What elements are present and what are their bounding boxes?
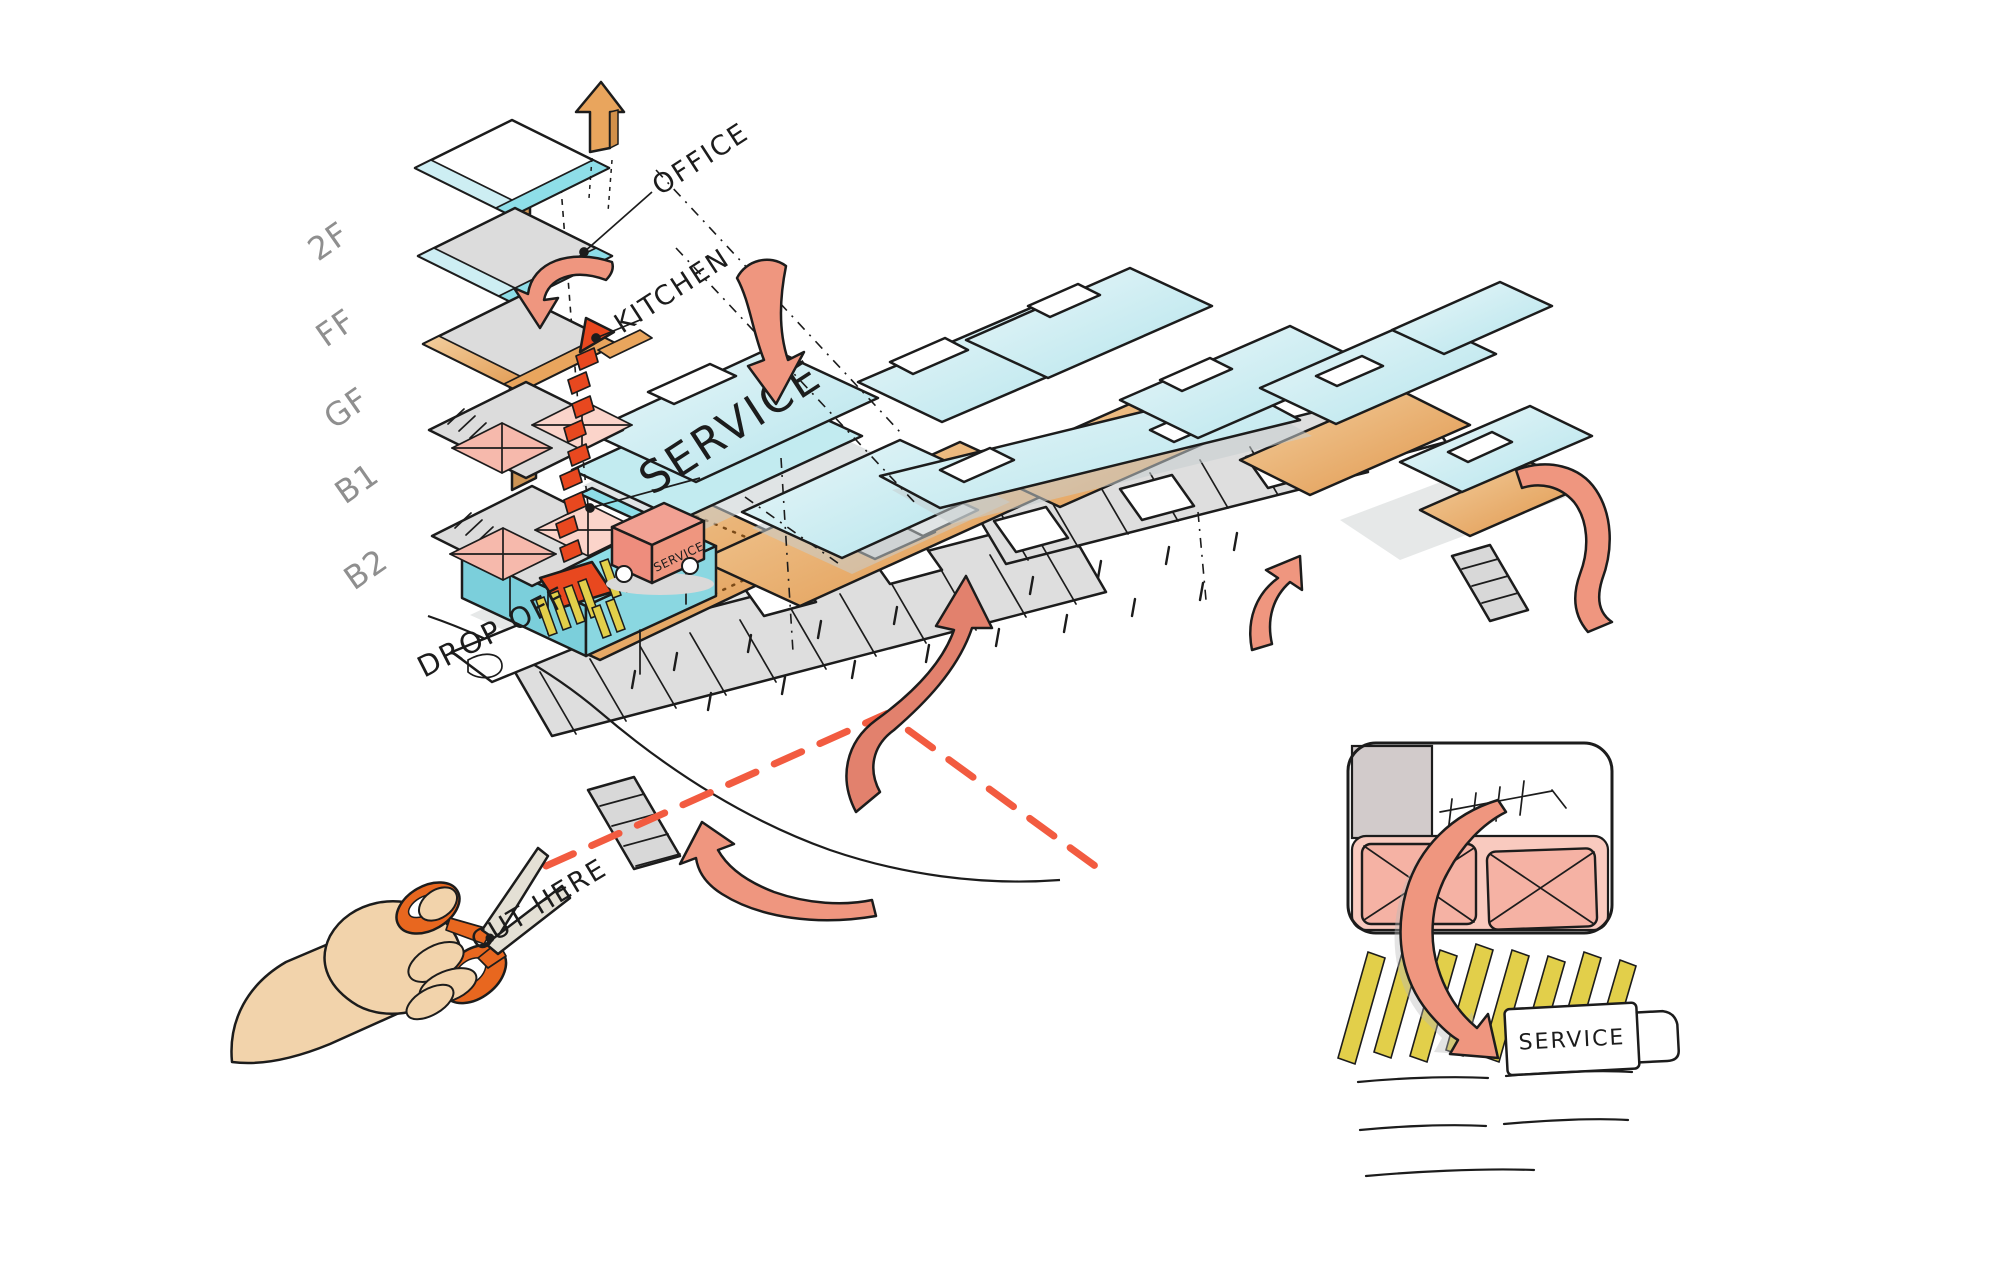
floor-label-ff: FF: [309, 301, 363, 354]
hand-with-scissors: CUT HERE: [231, 848, 612, 1063]
inset-gray-zone: [1352, 746, 1432, 838]
floor-label-b2: B2: [337, 541, 395, 598]
office-label: OFFICE: [647, 117, 755, 202]
walkway-ladder-left: [588, 777, 680, 869]
walkway-ladder-right: [1452, 545, 1528, 621]
floor-label-b1: B1: [328, 455, 386, 512]
service-detail-inset: SERVICE: [1338, 743, 1680, 1176]
inset-service-truck: SERVICE: [1504, 1000, 1679, 1075]
flow-arrow-right-rising: [1250, 556, 1302, 650]
inset-service-bay-box: [1487, 848, 1598, 930]
diagram-svg: 2F FF GF B1 B2: [0, 0, 2000, 1275]
plate-roof: [415, 82, 624, 216]
architectural-diagram: 2F FF GF B1 B2: [0, 0, 2000, 1275]
floor-label-2f: 2F: [301, 214, 356, 269]
flow-arrow-bottom-loop: [680, 822, 876, 920]
floor-label-gf: GF: [317, 379, 376, 436]
inset-road-lines: [1358, 1071, 1632, 1176]
exit-up-arrow-icon: [576, 82, 624, 152]
